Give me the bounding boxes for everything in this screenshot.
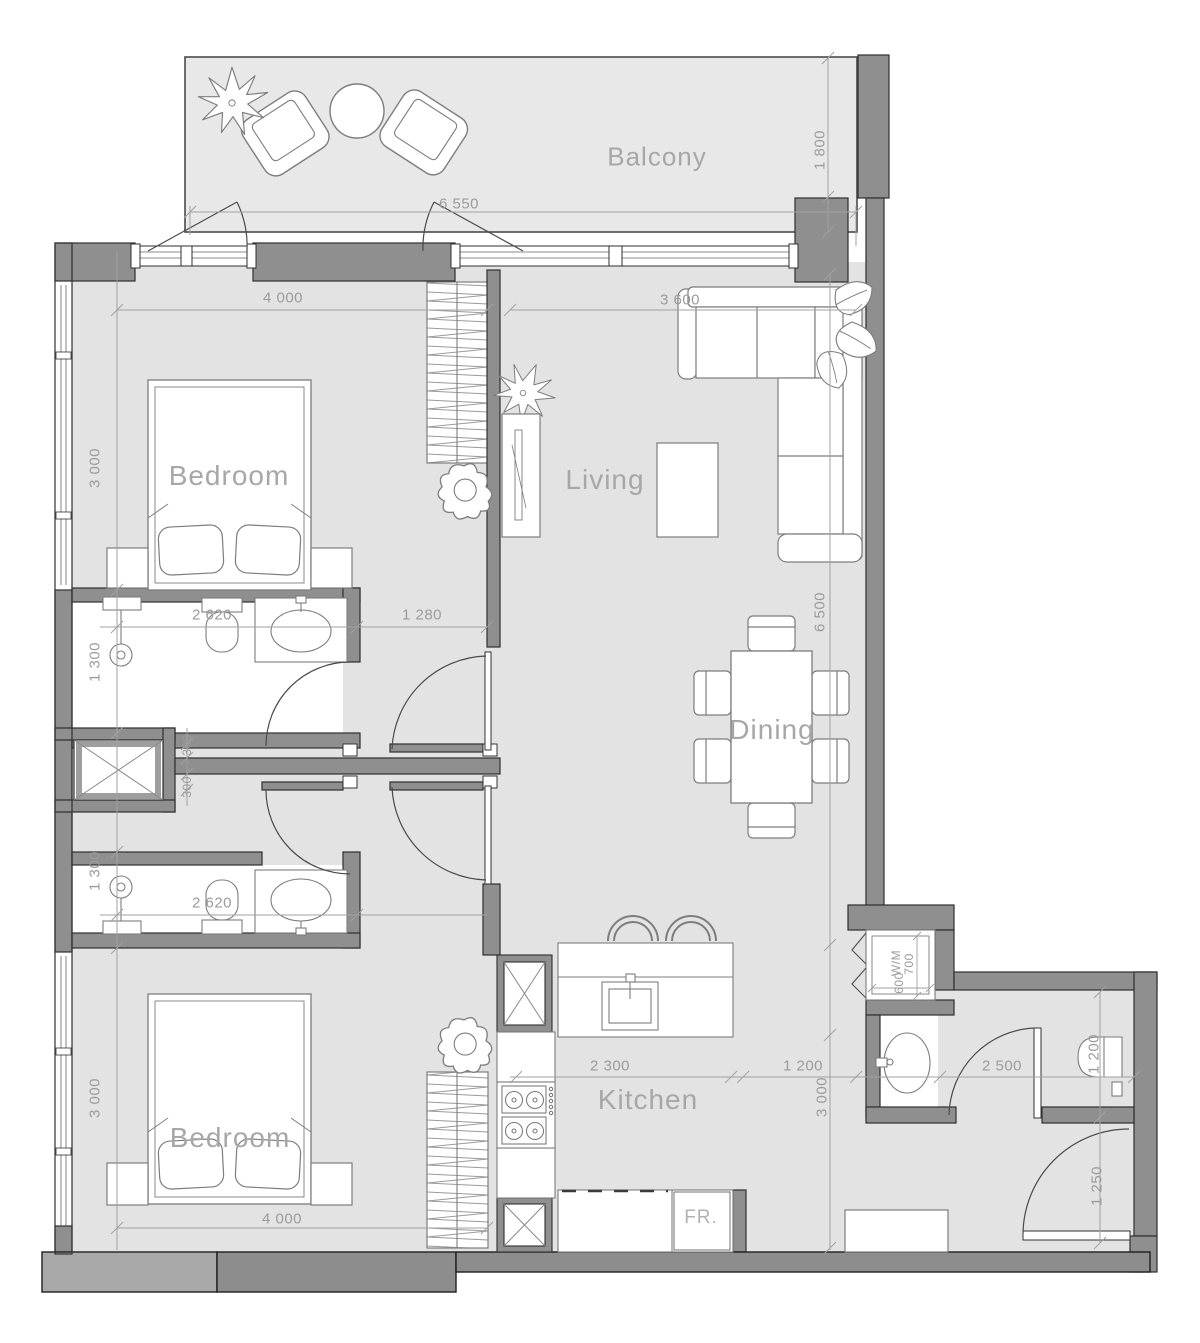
dim-bedroom-top-depth: 3 000 (87, 448, 104, 488)
duct-shaft-top (497, 955, 552, 1032)
dim-entry-depth: 1 250 (1089, 1166, 1106, 1206)
room-label-bedroom-bottom: Bedroom (170, 1122, 291, 1154)
dim-bedroom-bottom-width: 4 000 (262, 1211, 302, 1228)
kitchen-island (558, 943, 733, 1037)
bed-bottom (148, 994, 311, 1204)
room-label-living: Living (565, 464, 644, 496)
dim-bath-top-depth: 1 300 (87, 642, 104, 682)
dim-kitchen-depth: 3 000 (814, 1077, 831, 1117)
dim-balcony-width: 6 550 (439, 196, 479, 213)
dim-bath-bottom-width: 2 620 (192, 895, 232, 912)
dim-bedroom-top-width: 4 000 (263, 290, 303, 307)
dim-bath-top-width: 2 620 (192, 607, 232, 624)
elevator-shaft (74, 740, 163, 800)
dim-wall-offset-top: 300 (180, 734, 194, 756)
dim-balcony-depth: 1 800 (812, 130, 829, 170)
room-label-bedroom-top: Bedroom (169, 460, 290, 492)
dim-living-width: 3 600 (660, 292, 700, 309)
dim-washer-width: 600 (892, 972, 906, 994)
fridge-label: FR. (684, 1207, 718, 1229)
room-label-balcony: Balcony (607, 142, 707, 173)
dim-hall-opening: 1 280 (402, 607, 442, 624)
dim-kitchen-passage: 1 200 (783, 1058, 823, 1075)
room-label-kitchen: Kitchen (598, 1084, 698, 1116)
floorplan-canvas: Balcony Bedroom Living Dining Kitchen Be… (0, 0, 1200, 1343)
room-label-dining: Dining (729, 714, 814, 746)
dim-kitchen-width: 2 300 (590, 1058, 630, 1075)
dim-wall-offset-bottom: 300 (180, 776, 194, 798)
entry-console (845, 1210, 948, 1252)
dim-bedroom-bottom-depth: 3 000 (87, 1078, 104, 1118)
stove-icon (497, 1082, 555, 1148)
dim-living-length: 6 500 (812, 592, 829, 632)
dim-bath-bottom-depth: 1 300 (87, 851, 104, 891)
dim-wc-depth: 1 200 (1086, 1034, 1103, 1074)
dim-entry-width: 2 500 (982, 1058, 1022, 1075)
duct-shaft-bottom (497, 1198, 552, 1252)
